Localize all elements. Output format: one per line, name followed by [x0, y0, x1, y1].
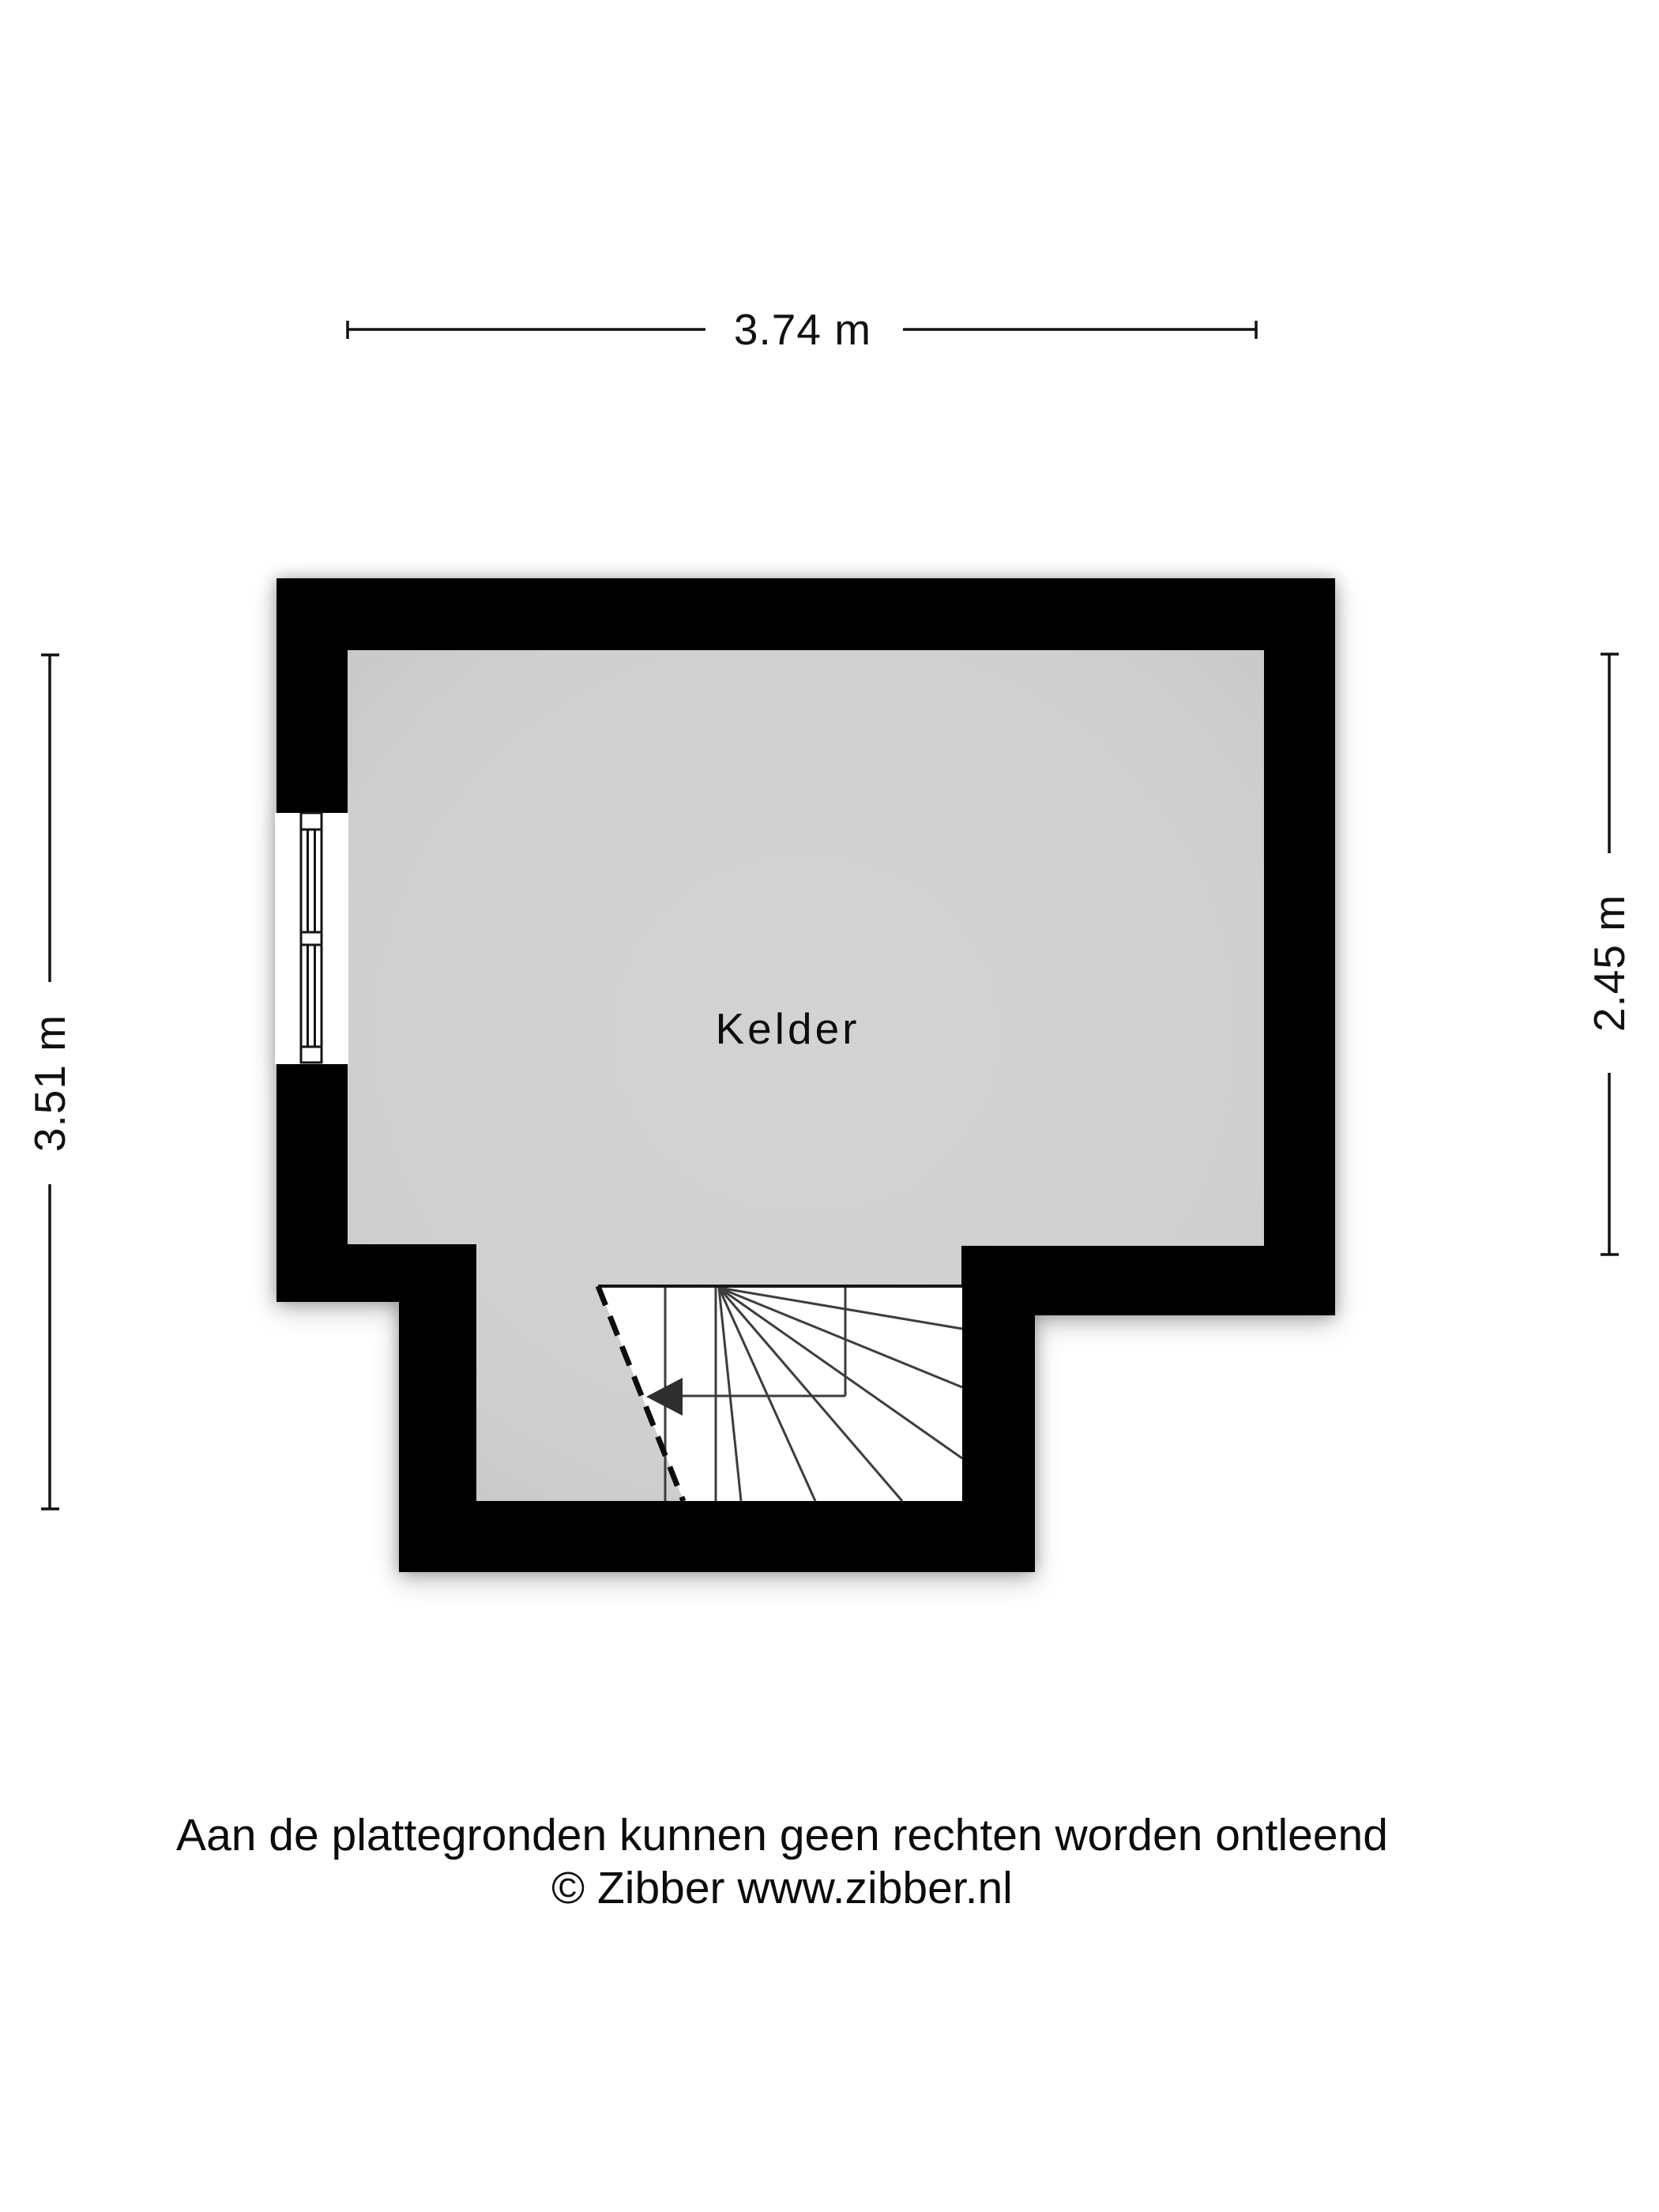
dimension-top-label: 3.74 m	[734, 305, 871, 354]
footer-credit: © Zibber www.zibber.nl	[551, 1863, 1013, 1913]
room-label: Kelder	[716, 1004, 860, 1053]
dimension-right-label: 2.45 m	[1585, 894, 1634, 1032]
dimension-top: 3.74 m	[348, 305, 1256, 354]
window-opening	[275, 813, 348, 1064]
footer: Aan de plattegronden kunnen geen rechten…	[176, 1810, 1388, 1913]
building: Kelder	[275, 578, 1335, 1572]
footer-disclaimer: Aan de plattegronden kunnen geen rechten…	[176, 1810, 1388, 1860]
dimension-right: 2.45 m	[1585, 654, 1634, 1255]
floorplan-page: Kelder 3.74 m 3.51 m 2.45 m	[0, 0, 1659, 2212]
dimension-left: 3.51 m	[25, 655, 74, 1509]
dimension-left-label: 3.51 m	[25, 1014, 74, 1152]
floorplan-canvas: Kelder 3.74 m 3.51 m 2.45 m	[0, 0, 1659, 2212]
window	[275, 813, 348, 1064]
